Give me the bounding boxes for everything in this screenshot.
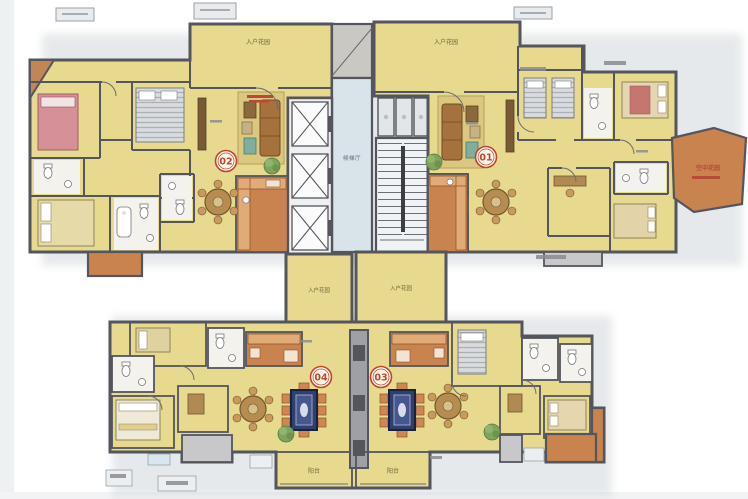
unit-03-cabinet — [508, 394, 522, 412]
unit-02-plant — [264, 158, 280, 174]
unit-04-ac-box — [250, 455, 272, 468]
unit-02-balcony — [88, 252, 142, 276]
unit-03-gray-balcony — [500, 435, 522, 462]
unit-04-balcony-label: 阳台 — [308, 467, 320, 475]
floor-plan-drawing: 入户花园 02 候梯厅 — [0, 0, 748, 499]
unit-02: 入户花园 02 — [30, 24, 332, 276]
sky-garden-terrace: 空中花园 — [672, 128, 746, 212]
unit-02-entry-garden-label: 入户花园 — [246, 38, 270, 46]
elevator-lobby-label: 候梯厅 — [343, 154, 361, 162]
unit-01-tv-cabinet — [506, 100, 514, 152]
stairs — [376, 138, 428, 252]
floor-plan-page: 入户花园 02 候梯厅 — [0, 0, 748, 499]
sky-garden-annotation — [692, 176, 720, 179]
unit-03-ac-box — [524, 448, 544, 461]
garden-03-label: 入户花园 — [390, 284, 413, 292]
unit-02-bath-1 — [34, 160, 80, 194]
elevators — [288, 98, 332, 254]
unit-03-bath-1 — [522, 338, 558, 380]
unit-03-badge: 03 — [371, 367, 392, 388]
core-vestibule — [332, 24, 372, 78]
duct-shafts — [378, 98, 428, 136]
unit-03-orange-balcony-h — [546, 434, 596, 462]
svg-text:04: 04 — [314, 373, 328, 384]
unit-04-badge: 04 — [311, 367, 332, 388]
svg-text:03: 03 — [374, 373, 387, 384]
unit-04-bath-1 — [208, 328, 244, 368]
unit-04-cabinet — [188, 394, 204, 414]
elevator-lobby — [332, 78, 372, 252]
unit-01-entry-garden-label: 入户花园 — [434, 38, 458, 46]
page-edge-shade — [0, 0, 14, 499]
garden-04-label: 入户花园 — [308, 286, 331, 294]
unit-04-plant — [278, 426, 294, 442]
unit-02-tv-cabinet — [198, 98, 206, 150]
unit-04-bath-2 — [112, 356, 154, 392]
unit-02-badge: 02 — [216, 151, 237, 172]
unit-01-desk — [554, 176, 586, 186]
unit-01-badge: 01 — [476, 147, 497, 168]
central-shaft — [350, 330, 368, 468]
unit-01-plant — [426, 154, 442, 170]
unit-03-plant — [484, 424, 500, 440]
garden-to-unit-03 — [356, 252, 446, 332]
unit-02-bath-3 — [162, 176, 192, 220]
unit-03-balcony-label: 阳台 — [387, 467, 399, 475]
sky-garden-label: 空中花园 — [696, 164, 720, 172]
svg-text:02: 02 — [219, 157, 232, 168]
unit-04-gray-balcony — [182, 435, 232, 462]
svg-text:01: 01 — [479, 153, 492, 164]
